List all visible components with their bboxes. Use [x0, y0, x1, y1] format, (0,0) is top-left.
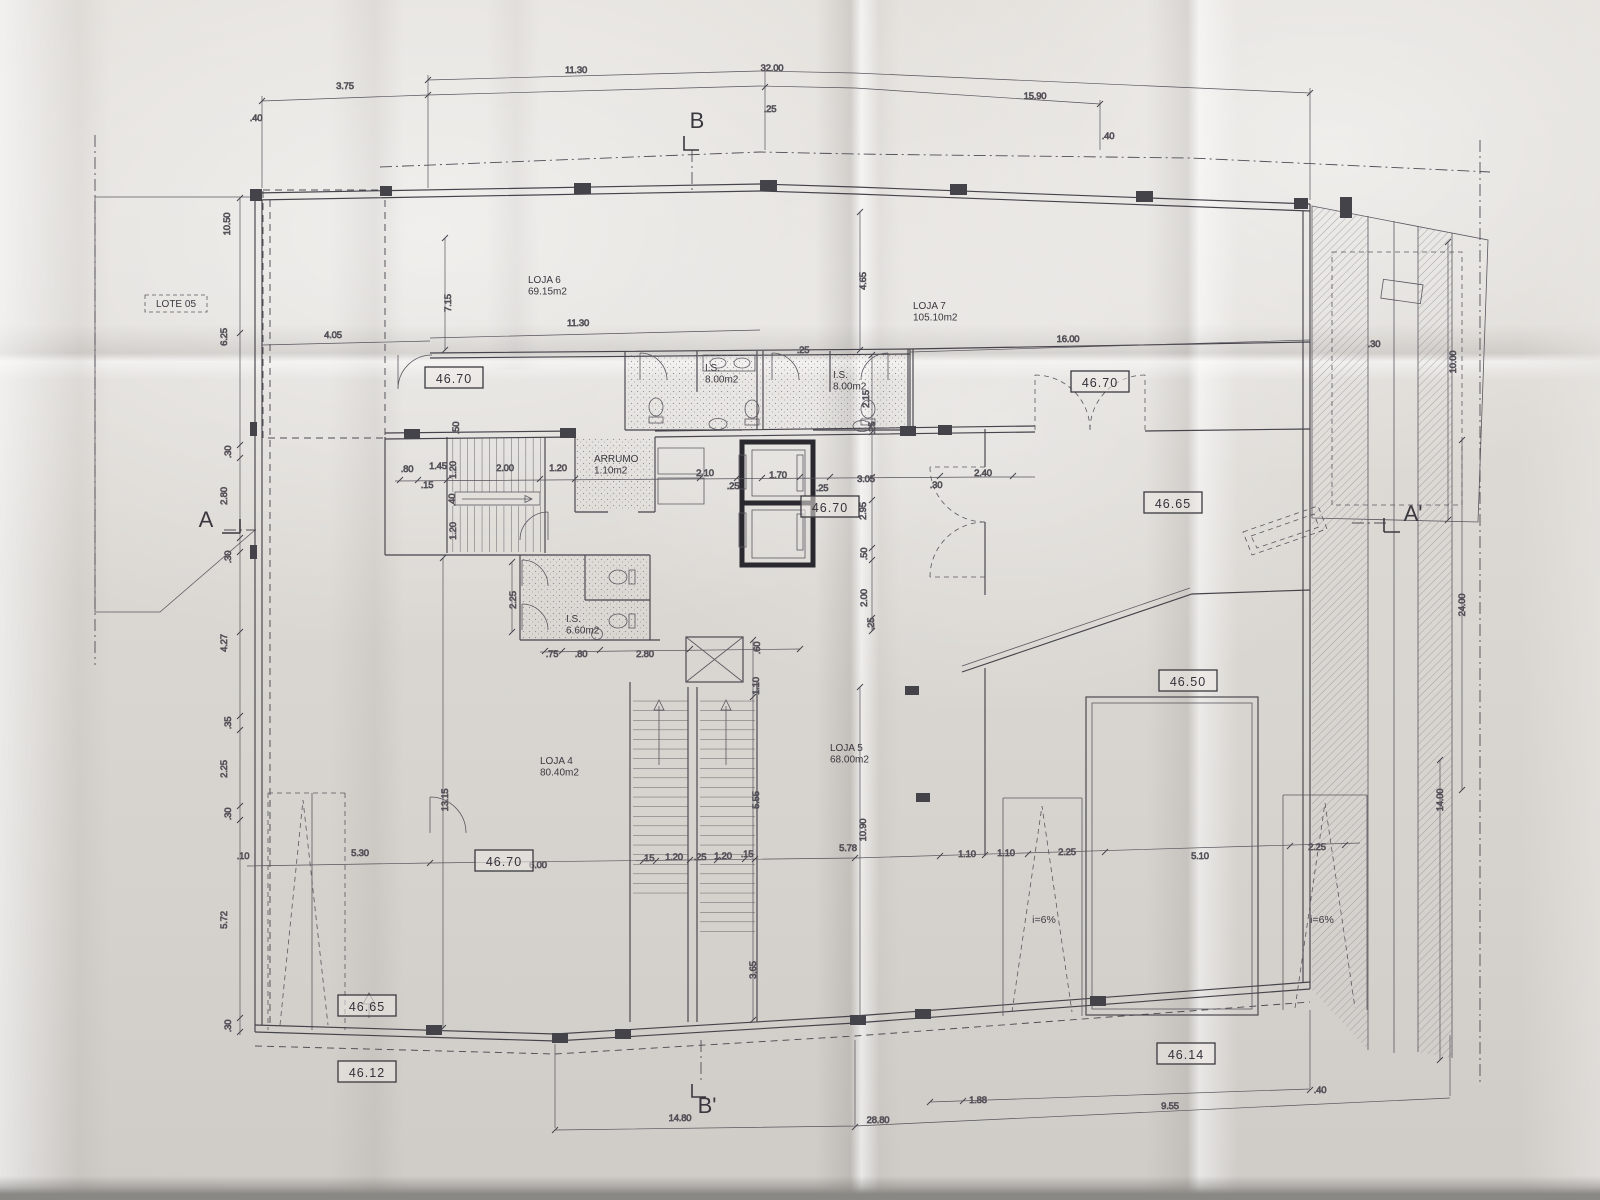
dimension-label: 2.95: [858, 502, 869, 520]
dimension-label: .15: [642, 853, 655, 864]
dimension-label: 5.10: [1191, 851, 1209, 862]
dimension-label: .40: [1102, 131, 1115, 142]
dimension-label: .75: [546, 649, 559, 660]
dimension-label: .35: [223, 717, 234, 730]
dimension-label: 1.20: [665, 852, 683, 863]
dimension-label: 1.70: [769, 470, 787, 481]
dimension-label: .30: [930, 480, 943, 491]
dimension-label: 2.25: [1308, 842, 1326, 853]
room-area-loja-4: 80.40m2: [540, 768, 579, 779]
room-area-arrumo: 1.10m2: [594, 466, 628, 477]
dimension-label: .30: [223, 446, 234, 459]
dimension-label: .25: [764, 104, 777, 115]
dimension-label: .60: [752, 642, 763, 655]
dimension-label: 2.15: [861, 390, 872, 408]
elevation-value: 46.70: [1082, 376, 1118, 390]
dimension-label: 2.25: [508, 591, 519, 609]
dimension-label: 1.45: [429, 461, 447, 472]
dimension-label: 2.80: [219, 487, 230, 505]
dimension-label: 5.72: [219, 911, 230, 929]
dimension-label: 5.55: [751, 791, 762, 809]
dimension-label: 11.30: [567, 318, 589, 329]
dimension-label: 4.05: [324, 330, 342, 341]
setback-dashed-lines: [224, 150, 1490, 1082]
elevation-value: 46.12: [349, 1066, 385, 1080]
section-marker-A-prime: A': [1404, 501, 1423, 526]
dimension-label: 1.20: [448, 522, 459, 540]
dimension-label: 1.10: [958, 849, 976, 860]
room-label-loja-7: LOJA 7: [913, 301, 946, 312]
dimension-label: 5.78: [839, 843, 857, 854]
elevation-value: 46.14: [1168, 1048, 1204, 1062]
room-label-loja-4: LOJA 4: [540, 756, 573, 767]
paper-bottom-edge: [0, 1176, 1600, 1200]
dimension-label: 2.00: [859, 589, 870, 607]
dimension-label: 2.25: [1058, 847, 1076, 858]
room-label-is-loja6: I.S.: [705, 363, 720, 374]
dimension-label: 2.25: [219, 760, 230, 778]
dimension-label: .80: [575, 649, 588, 660]
labels-layer: .403.7511.3032.00.2515.90.4011.3016.004.…: [145, 63, 1468, 1126]
dimension-label: .15: [741, 849, 754, 860]
room-area-is-660: 6.60m2: [566, 626, 600, 637]
floor-plan-drawing: .403.7511.3032.00.2515.90.4011.3016.004.…: [0, 0, 1600, 1200]
room-label-loja-6: LOJA 6: [528, 275, 561, 286]
dimension-label: 3.05: [857, 474, 875, 485]
wall-piers: [250, 180, 1352, 1043]
dimension-label: 1.20: [448, 461, 459, 479]
dimension-label: 14.00: [1435, 789, 1446, 812]
dimension-label: 4.65: [858, 272, 869, 290]
dimension-label: 1.20: [549, 463, 567, 474]
dimension-label: 2.10: [696, 468, 714, 479]
room-area-loja-7: 105.10m2: [913, 313, 958, 324]
dimension-label: .30: [223, 1020, 234, 1033]
dimension-label: .40: [250, 113, 263, 124]
dimension-label: 32.00: [761, 63, 784, 74]
dimension-label: 1.20: [714, 851, 732, 862]
dimension-label: 11.30: [565, 65, 587, 76]
dimension-label: .25: [694, 852, 707, 863]
dimension-label: 28.80: [867, 1115, 890, 1126]
stair-left: [448, 438, 544, 552]
section-marker-A: A: [199, 507, 214, 532]
stair-central: [633, 697, 755, 932]
elevation-value: 46.70: [812, 501, 848, 515]
elevation-value: 46.65: [349, 1000, 385, 1014]
dimension-label: .80: [401, 464, 414, 475]
room-label-loja-5: LOJA 5: [830, 743, 863, 754]
room-area-is-loja6: 8.00m2: [705, 375, 739, 386]
room-label-is-660: I.S.: [566, 614, 581, 625]
room-area-is-loja7: 8.00m2: [833, 382, 867, 393]
section-marker-B-prime: B': [698, 1093, 717, 1118]
dimension-label: 7.15: [443, 294, 454, 312]
dimension-label: 4.27: [219, 634, 230, 652]
road-strip: [95, 135, 1480, 1085]
ramp-slope-label: i=6%: [1310, 914, 1334, 926]
hatch-areas: [95, 197, 1488, 1058]
dimension-label: 1.88: [969, 1095, 987, 1106]
dimension-label: .40: [1314, 1085, 1327, 1096]
dimension-label: .30: [1368, 339, 1381, 350]
dimension-label: 16.00: [1057, 334, 1080, 345]
dimension-label: .25: [727, 481, 740, 492]
elevation-value: 46.65: [1155, 497, 1191, 511]
room-label-is-loja7: I.S.: [833, 370, 848, 381]
dimension-label: .25: [797, 345, 810, 356]
ramp-slope-label: i=6%: [1032, 914, 1056, 926]
room-label-lote-05: LOTE 05: [156, 299, 196, 310]
outer-walls: [255, 184, 1310, 1041]
section-marker-B: B: [690, 108, 705, 133]
dimension-label: .25: [866, 618, 877, 631]
dimension-label: 2.80: [636, 649, 654, 660]
dimension-label: .30: [223, 551, 234, 564]
room-area-loja-6: 69.15m2: [528, 287, 567, 298]
dimension-label: 24.00: [1457, 594, 1468, 617]
dimension-label: 10.90: [858, 819, 869, 842]
section-brackets: [222, 136, 1400, 1097]
dimension-label: .30: [223, 808, 234, 821]
dimension-label: 1.10: [751, 677, 762, 695]
dimension-label: 10.00: [1448, 351, 1459, 374]
dimension-label: .25: [816, 483, 829, 494]
dimension-label: .50: [451, 422, 462, 435]
dimension-label: 10.50: [222, 213, 233, 236]
dimension-label: 5.30: [351, 848, 369, 859]
dimension-label: .15: [421, 480, 434, 491]
dimension-label: .50: [859, 548, 870, 561]
dimension-label: 2.00: [496, 463, 514, 474]
dimension-label: 9.55: [1161, 1101, 1179, 1112]
dimension-lines: [240, 70, 1462, 1130]
dimension-label: 3.65: [748, 961, 759, 979]
dimension-label: 14.80: [669, 1113, 692, 1124]
dimension-label: .10: [237, 851, 250, 862]
dimension-ticks: [237, 77, 1465, 1133]
dimension-label: 6.25: [219, 328, 230, 346]
dimension-label: .25: [867, 422, 878, 435]
elevation-value: 46.70: [486, 855, 522, 869]
dimension-label: 15.90: [1024, 91, 1047, 102]
elevation-value: 46.70: [436, 372, 472, 386]
dimension-label: .40: [447, 494, 458, 507]
elevation-value: 46.50: [1170, 675, 1206, 689]
photo-of-floor-plan: .403.7511.3032.00.2515.90.4011.3016.004.…: [0, 0, 1600, 1200]
dimension-label: 2.40: [974, 468, 992, 479]
dimension-label: 13.15: [440, 789, 451, 812]
dimension-label: 3.75: [336, 81, 354, 92]
room-label-arrumo: ARRUMO: [594, 454, 639, 465]
dimension-label: 1.10: [997, 848, 1015, 859]
room-area-loja-5: 68.00m2: [830, 755, 869, 766]
